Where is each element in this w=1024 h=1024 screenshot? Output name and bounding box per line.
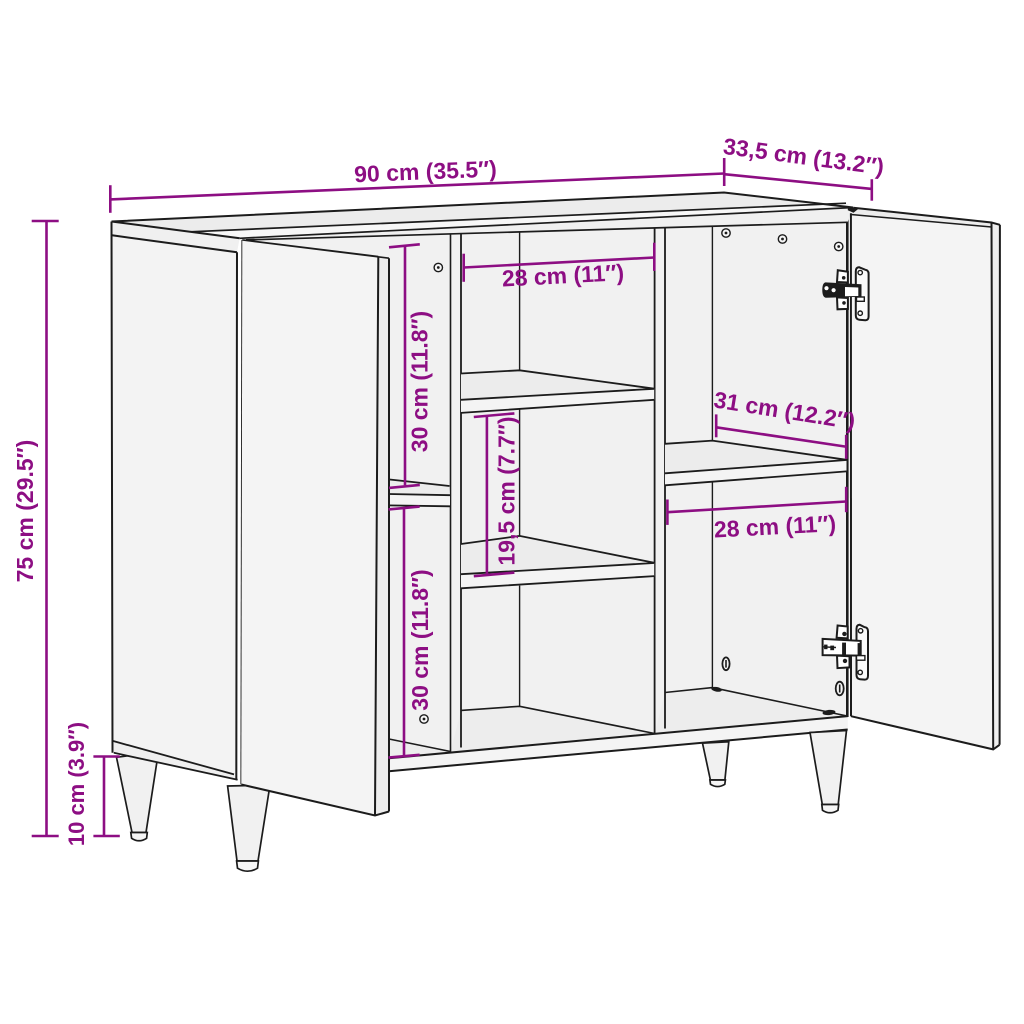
svg-text:10 cm (3.9″): 10 cm (3.9″) [64, 722, 89, 846]
svg-text:75 cm (29.5″): 75 cm (29.5″) [12, 440, 38, 583]
svg-text:19,5 cm (7.7″): 19,5 cm (7.7″) [493, 416, 519, 565]
svg-text:30 cm (11.8″): 30 cm (11.8″) [407, 569, 433, 710]
svg-text:30 cm (11.8″): 30 cm (11.8″) [406, 311, 432, 452]
